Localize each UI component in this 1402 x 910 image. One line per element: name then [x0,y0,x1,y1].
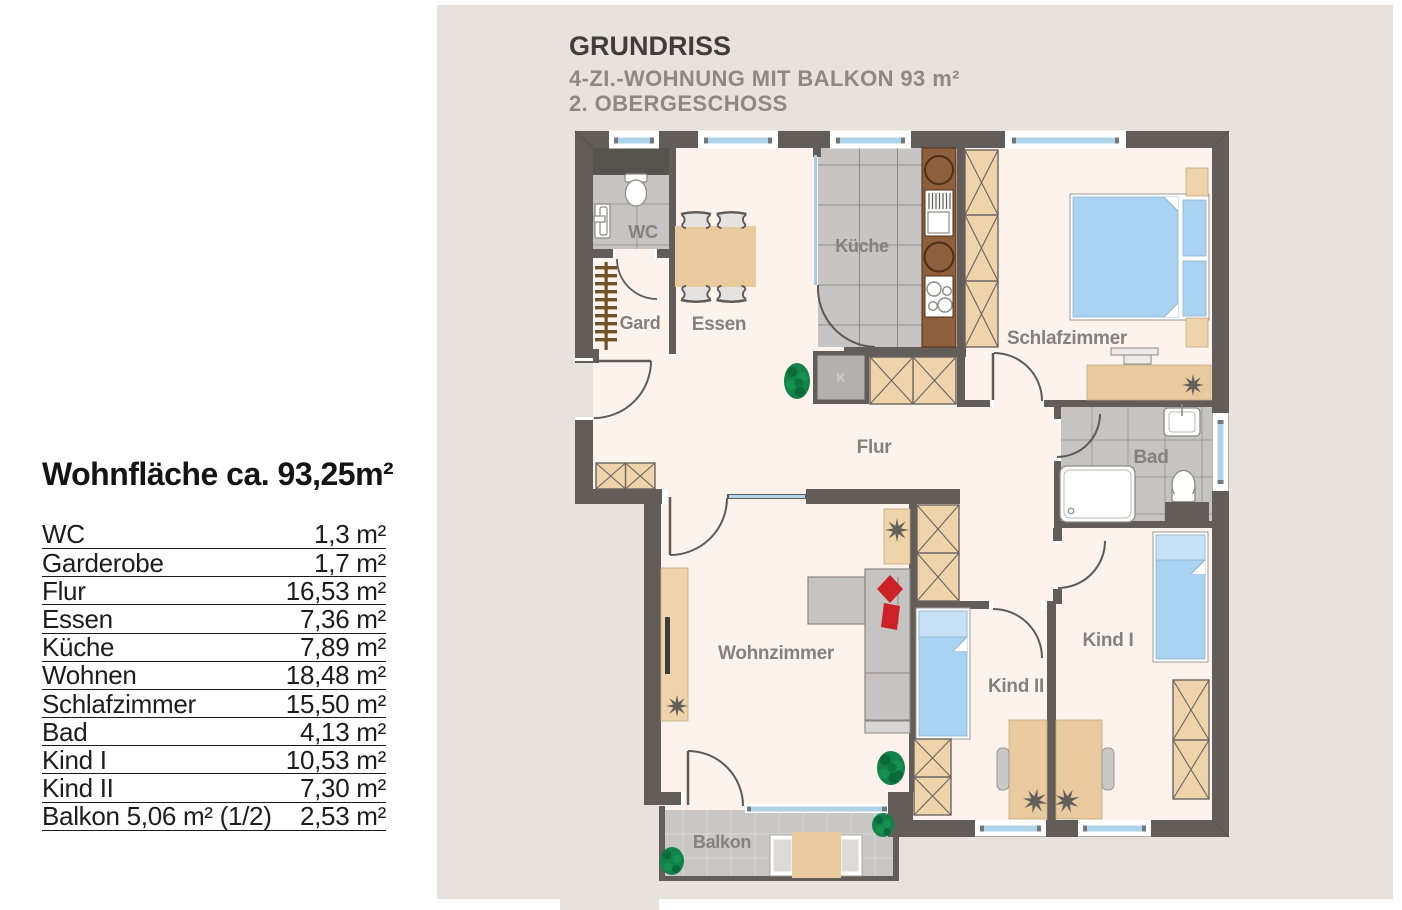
svg-text:Kind II: Kind II [988,676,1044,697]
svg-text:K: K [837,371,846,385]
svg-text:Wohnzimmer: Wohnzimmer [718,643,835,664]
svg-text:Flur: Flur [857,437,893,458]
svg-text:Bad: Bad [1134,447,1169,468]
svg-text:Schlafzimmer: Schlafzimmer [1007,328,1128,349]
svg-text:Kind I: Kind I [1083,630,1134,651]
svg-text:Gard: Gard [620,313,661,333]
svg-text:Essen: Essen [692,314,746,335]
svg-text:WC: WC [628,222,658,242]
svg-text:Küche: Küche [835,236,889,256]
svg-text:Balkon: Balkon [693,832,751,852]
